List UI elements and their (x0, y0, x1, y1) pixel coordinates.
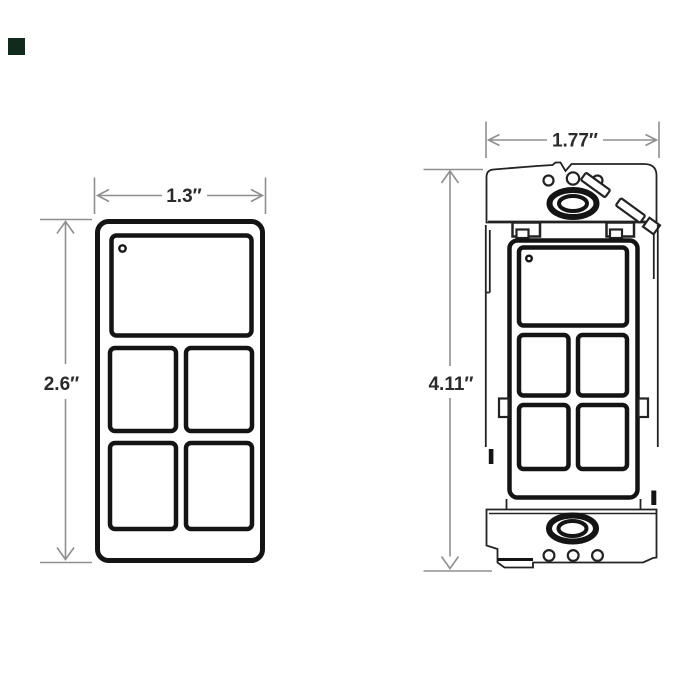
bracket-hole (567, 172, 579, 184)
wire-hole (568, 550, 579, 561)
large-button (519, 248, 627, 326)
small-button (519, 335, 569, 396)
module-side-tab-right (639, 399, 649, 418)
small-button (186, 443, 252, 529)
mounting-ear-left (489, 449, 494, 464)
small-button (110, 348, 176, 431)
mounting-ear-right (651, 491, 656, 506)
led-indicator (526, 256, 532, 262)
mounted-width-label: 1.77″ (552, 131, 598, 152)
bracket-hole (544, 176, 554, 186)
wire-hole (592, 550, 603, 561)
module-connector-lines (507, 499, 641, 510)
retainer-tab-notch (610, 230, 622, 239)
front-width-label: 1.3″ (166, 186, 202, 207)
mounted-view (486, 163, 660, 568)
led-indicator (119, 245, 125, 251)
arrowhead-down (442, 557, 459, 569)
large-button (112, 236, 252, 336)
mounted-height-label: 4.11″ (428, 374, 473, 395)
extension-lines (424, 170, 493, 572)
small-button (578, 335, 627, 396)
wire-hole (544, 550, 555, 561)
module-side-tab-left (499, 399, 509, 418)
small-button (519, 405, 569, 469)
small-button (186, 348, 252, 431)
mounted-height-dimension: 4.11″ (424, 170, 493, 572)
technical-drawing: 1.3″ 2.6″ (0, 0, 700, 700)
mounted-width-dimension: 1.77″ (486, 122, 659, 159)
front-height-label: 2.6″ (44, 374, 80, 395)
small-button (578, 405, 627, 469)
dimension-drawing-page: 1.3″ 2.6″ (0, 0, 700, 700)
front-width-dimension: 1.3″ (95, 178, 266, 215)
small-button (110, 443, 176, 529)
retainer-tab-notch (517, 230, 529, 239)
mounting-screw-slot-bottom-inner (559, 521, 587, 536)
mounting-screw-slot-top-inner (559, 196, 587, 211)
front-view (98, 222, 263, 561)
front-height-dimension: 2.6″ (40, 220, 92, 563)
